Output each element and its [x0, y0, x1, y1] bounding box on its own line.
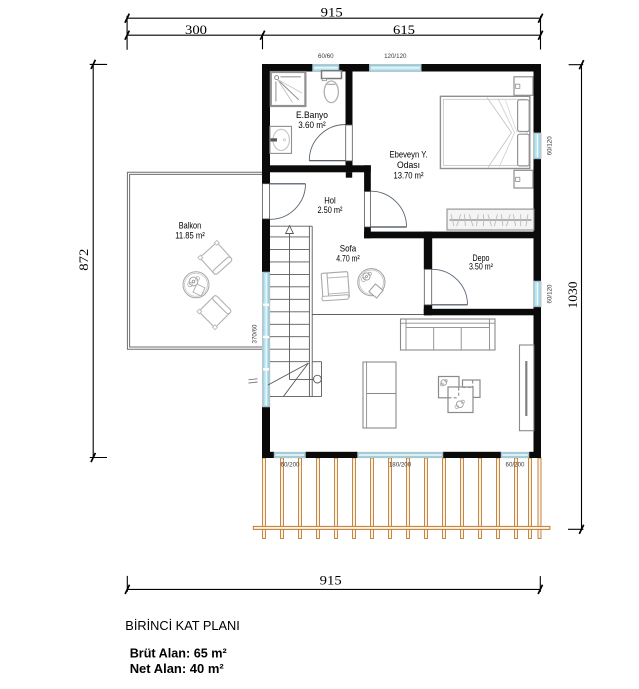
svg-text:Odası: Odası — [397, 160, 420, 171]
svg-text:60/120: 60/120 — [547, 284, 554, 303]
svg-text:11.85 m²: 11.85 m² — [175, 230, 205, 241]
svg-text:60/200: 60/200 — [281, 461, 300, 468]
svg-text:872: 872 — [76, 249, 91, 271]
svg-text:BİRİNCİ KAT PLANI: BİRİNCİ KAT PLANI — [125, 619, 240, 633]
svg-text:3.60 m²: 3.60 m² — [298, 120, 326, 131]
svg-text:Ebeveyn Y.: Ebeveyn Y. — [390, 150, 428, 161]
svg-text:1030: 1030 — [565, 282, 580, 309]
svg-text:2.50 m²: 2.50 m² — [318, 205, 343, 216]
svg-text:300: 300 — [185, 22, 207, 37]
svg-text:60/120: 60/120 — [547, 136, 554, 155]
svg-text:915: 915 — [320, 572, 342, 587]
svg-text:370/60: 370/60 — [252, 324, 259, 343]
svg-text:915: 915 — [321, 5, 343, 20]
svg-text:Brüt Alan: 65 m²: Brüt Alan: 65 m² — [130, 645, 228, 660]
svg-text:13.70 m²: 13.70 m² — [394, 171, 424, 182]
svg-text:E.Banyo: E.Banyo — [296, 110, 328, 121]
svg-text:4.70 m²: 4.70 m² — [336, 253, 360, 264]
svg-text:Net Alan: 40 m²: Net Alan: 40 m² — [130, 661, 225, 676]
svg-text:3.50 m²: 3.50 m² — [469, 262, 493, 272]
svg-text:180/200: 180/200 — [389, 461, 412, 468]
svg-text:615: 615 — [393, 22, 415, 37]
svg-text:60/200: 60/200 — [506, 461, 525, 468]
svg-text:60/60: 60/60 — [318, 53, 334, 60]
svg-text:120/120: 120/120 — [384, 53, 407, 60]
